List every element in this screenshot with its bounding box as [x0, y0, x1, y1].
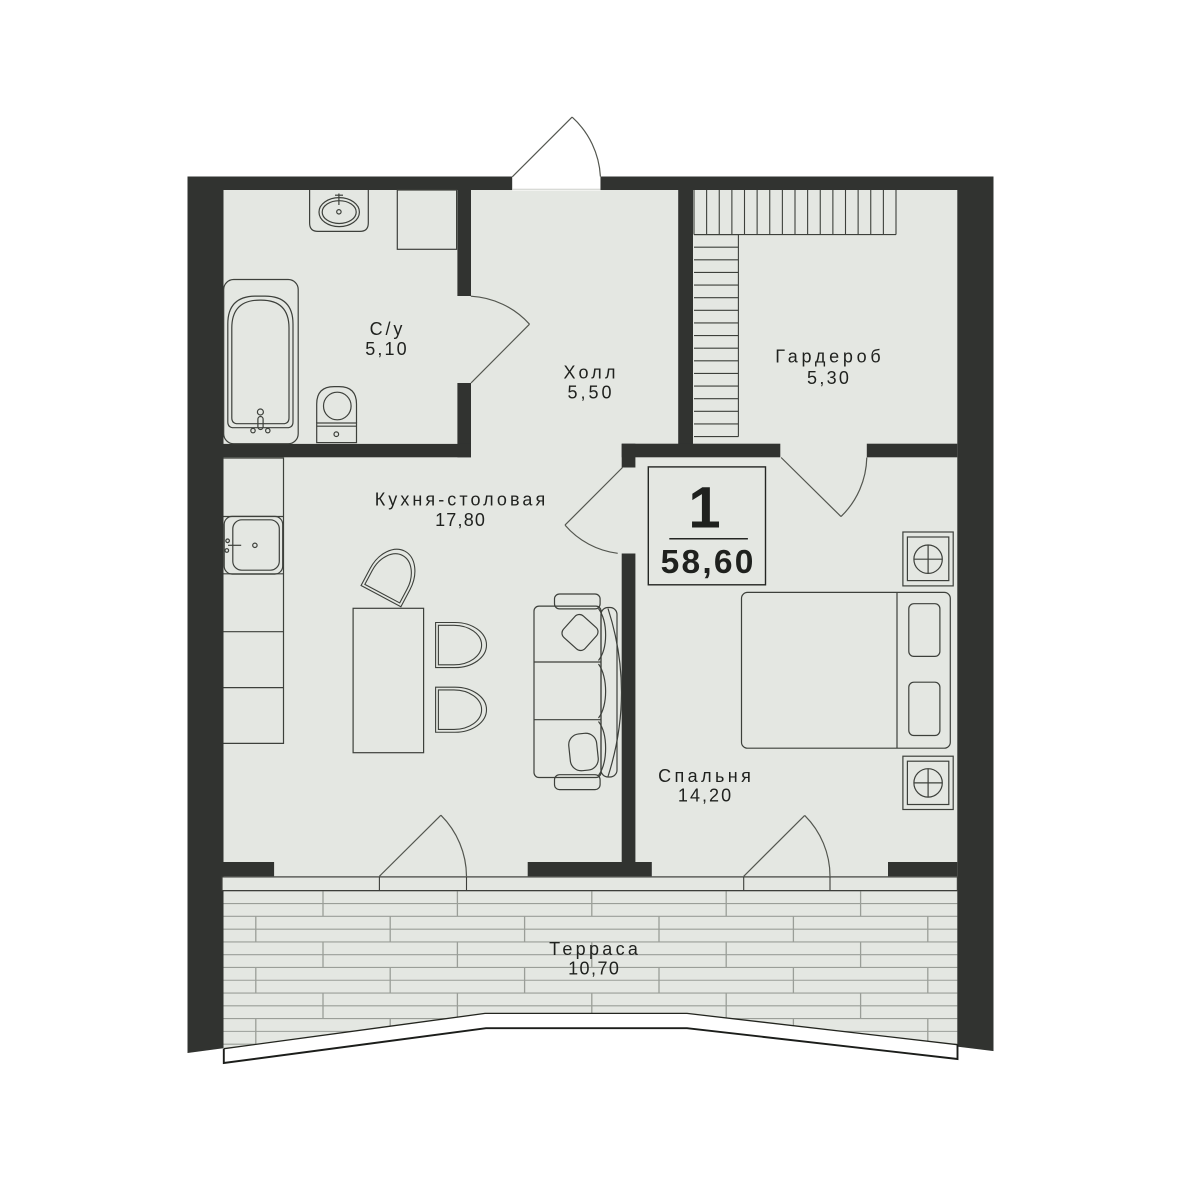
svg-text:С/у: С/у: [370, 319, 403, 339]
svg-text:10,70: 10,70: [568, 959, 619, 979]
svg-text:17,80: 17,80: [435, 510, 485, 530]
svg-text:5,30: 5,30: [807, 368, 849, 388]
svg-text:14,20: 14,20: [678, 786, 731, 806]
svg-text:1: 1: [688, 475, 720, 540]
svg-text:5,50: 5,50: [568, 383, 612, 403]
svg-text:5,10: 5,10: [365, 339, 406, 359]
svg-text:58,60: 58,60: [661, 544, 754, 581]
